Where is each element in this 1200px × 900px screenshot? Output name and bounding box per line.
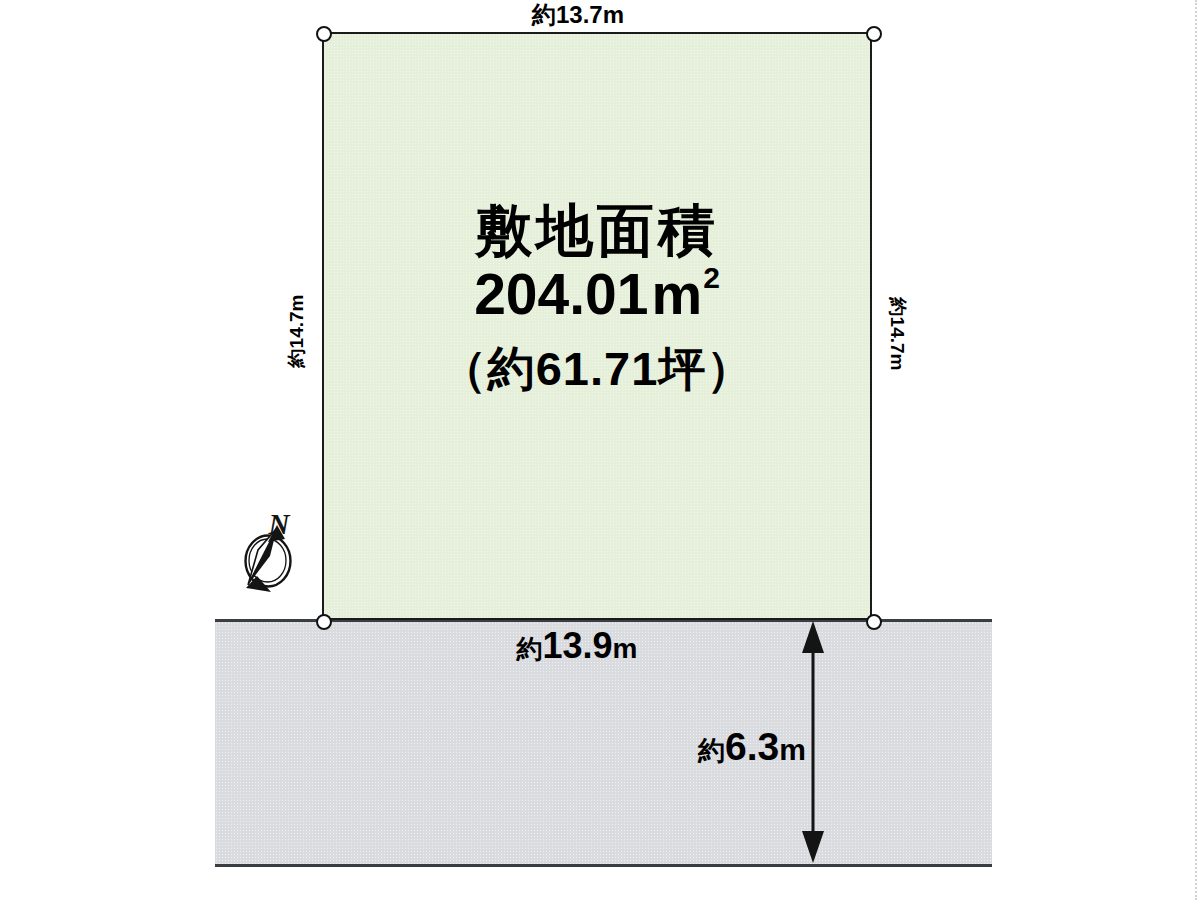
boundary-marker-bottom-left xyxy=(316,614,332,630)
boundary-marker-top-left xyxy=(316,26,332,42)
compass-north-icon: N xyxy=(235,500,305,600)
road-width-value: 6.3 xyxy=(725,725,779,768)
dimension-top: 約13.7m xyxy=(478,0,678,30)
frontage-value: 13.9 xyxy=(543,625,613,666)
road-frontage-label: 約13.9m xyxy=(477,626,677,668)
frontage-unit: m xyxy=(613,633,638,664)
dimension-left: 約14.7m xyxy=(285,261,309,401)
boundary-marker-bottom-right xyxy=(866,614,882,630)
area-unit: m xyxy=(651,262,702,326)
area-tsubo: （約61.71坪） xyxy=(322,336,872,402)
area-title: 敷地面積 xyxy=(322,198,872,262)
area-value-line: 204.01m2 xyxy=(322,262,872,336)
area-unit-exponent: 2 xyxy=(703,261,720,294)
site-plan-canvas: 敷地面積 204.01m2 （約61.71坪） 約13.7m 約14.7m 約1… xyxy=(0,0,1200,900)
road-width-label: 約6.3m xyxy=(606,726,806,770)
frontage-prefix: 約 xyxy=(517,634,543,664)
road-width-prefix: 約 xyxy=(698,736,725,766)
image-edge-border xyxy=(1195,0,1197,900)
road-width-arrow-icon xyxy=(790,615,836,870)
dimension-right: 約14.7m xyxy=(885,264,909,404)
compass-north-label: N xyxy=(268,508,291,540)
area-value: 204.01 xyxy=(474,262,648,326)
boundary-marker-top-right xyxy=(866,26,882,42)
area-text-block: 敷地面積 204.01m2 （約61.71坪） xyxy=(322,198,872,402)
